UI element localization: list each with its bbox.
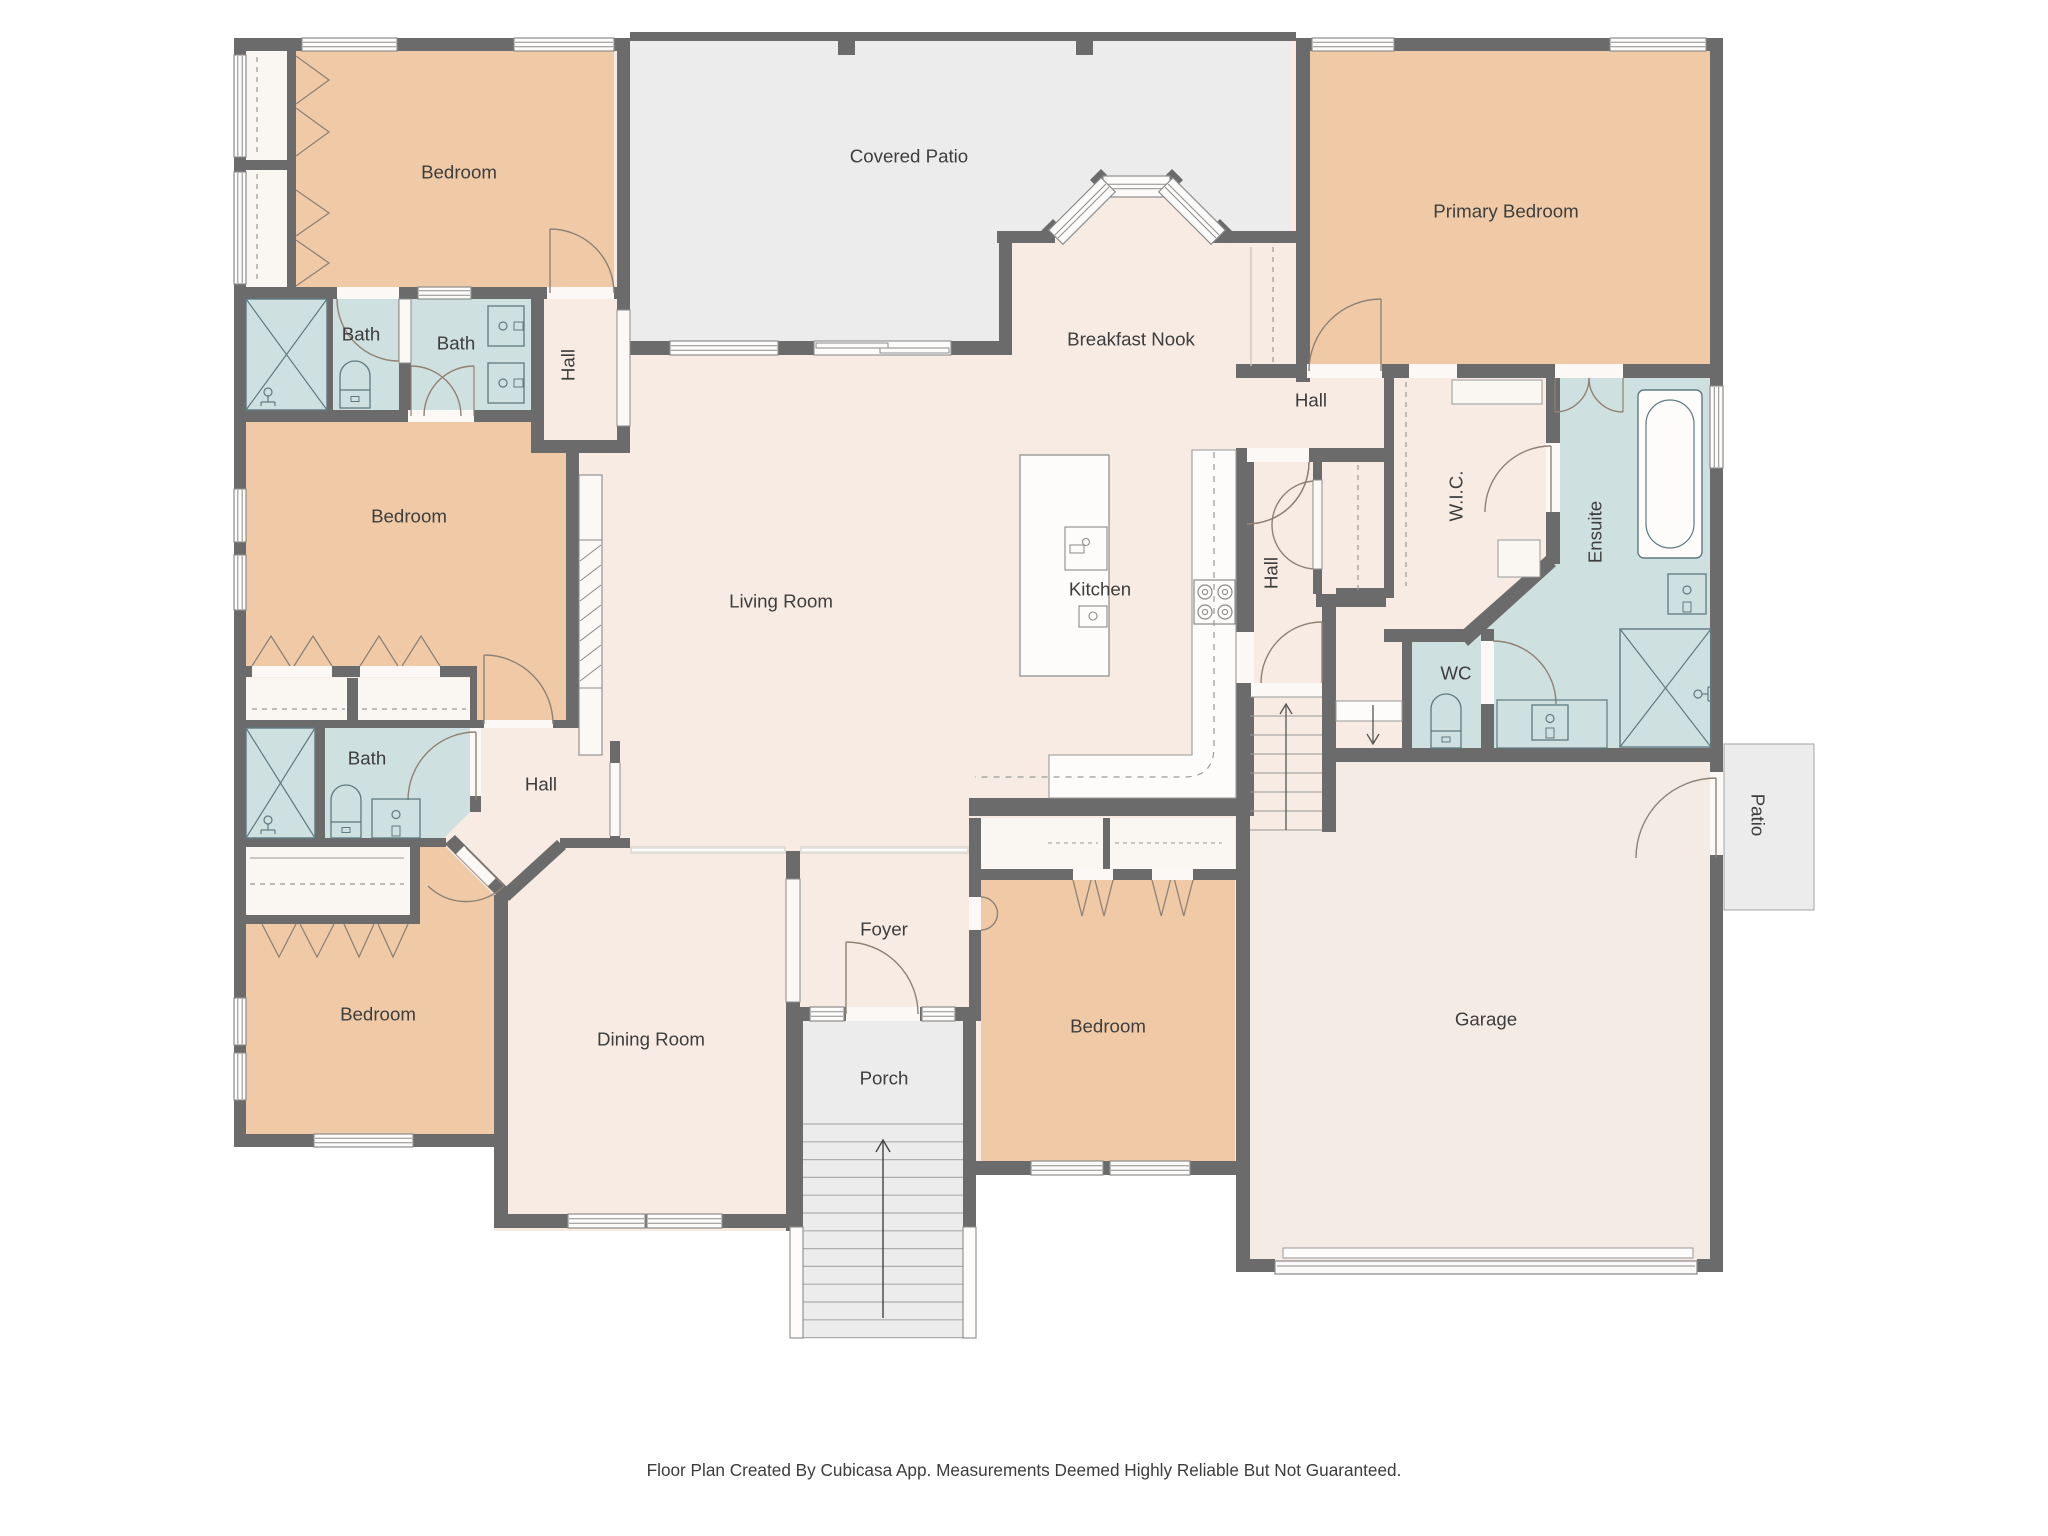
svg-text:Primary Bedroom: Primary Bedroom (1433, 201, 1578, 222)
svg-text:Bedroom: Bedroom (340, 1004, 416, 1025)
svg-text:Hall: Hall (558, 349, 579, 381)
svg-text:Bedroom: Bedroom (421, 162, 497, 183)
svg-text:Bath: Bath (342, 324, 380, 345)
svg-text:Bath: Bath (348, 748, 386, 769)
svg-text:W.I.C.: W.I.C. (1446, 471, 1467, 522)
svg-text:Floor Plan Created By Cubicasa: Floor Plan Created By Cubicasa App. Meas… (647, 1460, 1402, 1480)
svg-text:Foyer: Foyer (860, 919, 908, 940)
svg-text:Porch: Porch (860, 1068, 909, 1089)
svg-text:Hall: Hall (525, 774, 557, 795)
svg-text:Bath: Bath (437, 333, 475, 354)
svg-text:Bedroom: Bedroom (371, 506, 447, 527)
svg-text:Kitchen: Kitchen (1069, 579, 1131, 600)
svg-text:WC: WC (1440, 663, 1471, 684)
svg-text:Bedroom: Bedroom (1070, 1016, 1146, 1037)
svg-text:Dining Room: Dining Room (597, 1029, 705, 1050)
svg-text:Hall: Hall (1261, 557, 1282, 589)
svg-text:Covered Patio: Covered Patio (850, 146, 968, 167)
svg-text:Breakfast Nook: Breakfast Nook (1067, 329, 1195, 350)
svg-text:Hall: Hall (1295, 390, 1327, 411)
svg-text:Ensuite: Ensuite (1585, 501, 1606, 563)
svg-text:Garage: Garage (1455, 1009, 1517, 1030)
svg-text:Living Room: Living Room (729, 591, 833, 612)
svg-text:Patio: Patio (1747, 794, 1768, 837)
